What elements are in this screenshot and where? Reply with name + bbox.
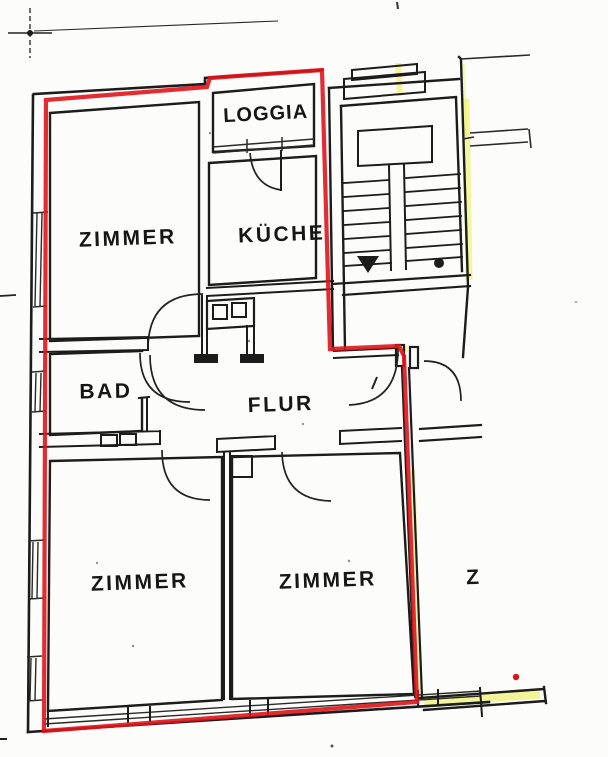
room-kueche xyxy=(209,156,316,285)
stair-direction-dot xyxy=(434,258,444,268)
pen-slash-mark xyxy=(372,377,377,389)
room-label-kueche: KÜCHE xyxy=(238,221,326,247)
room-label-zimmer-top-left: ZIMMER xyxy=(78,225,177,251)
room-label-neighbor-partial: Z xyxy=(466,566,482,590)
red-pen-dot xyxy=(513,674,519,680)
floor-plan-drawing: LOGGIA ZIMMER KÜCHE BAD FLUR ZIMMER ZIMM… xyxy=(0,0,608,757)
staircase xyxy=(329,55,531,357)
room-label-zimmer-bottom-left: ZIMMER xyxy=(90,569,189,595)
scan-noise-specks xyxy=(96,132,577,748)
room-label-bad: BAD xyxy=(79,380,132,404)
left-outer-wall xyxy=(28,95,33,732)
stair-steps-left xyxy=(344,180,391,266)
stair-steps-right xyxy=(406,174,462,261)
room-label-loggia: LOGGIA xyxy=(223,101,309,127)
door-arc-stair-landing xyxy=(424,361,461,401)
floor-plan-page: LOGGIA ZIMMER KÜCHE BAD FLUR ZIMMER ZIMM… xyxy=(0,0,608,757)
room-label-flur: FLUR xyxy=(247,392,314,417)
room-zimmer-top-left xyxy=(50,102,199,341)
door-arc-bad xyxy=(140,353,190,402)
room-label-zimmer-bottom-right: ZIMMER xyxy=(278,567,377,593)
door-arc-zimmer-top xyxy=(148,294,203,349)
door-arc-zimmer-bottom-right xyxy=(282,452,331,501)
